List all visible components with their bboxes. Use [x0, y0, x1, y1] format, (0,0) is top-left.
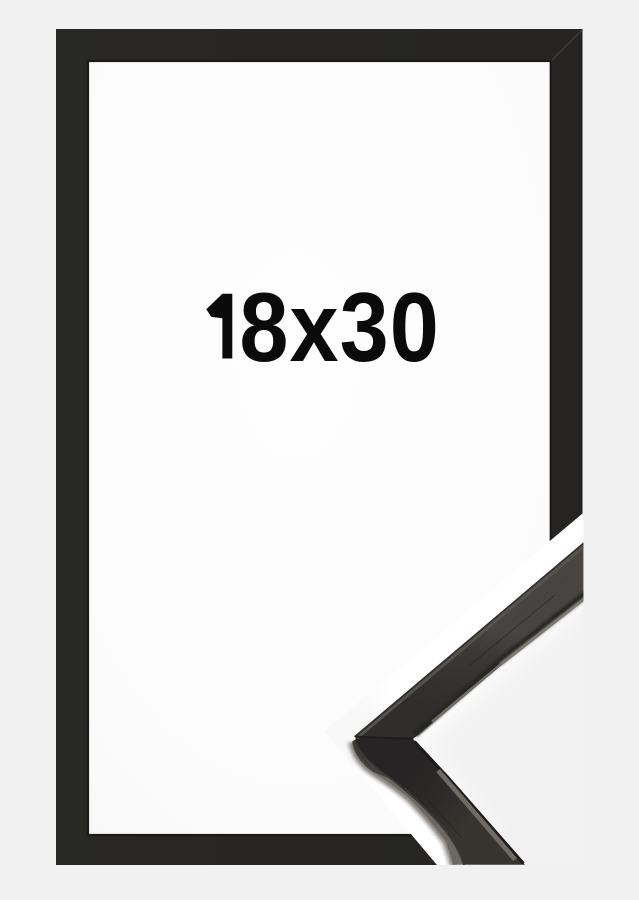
svg-text:8x30: 8x30 [239, 273, 440, 382]
